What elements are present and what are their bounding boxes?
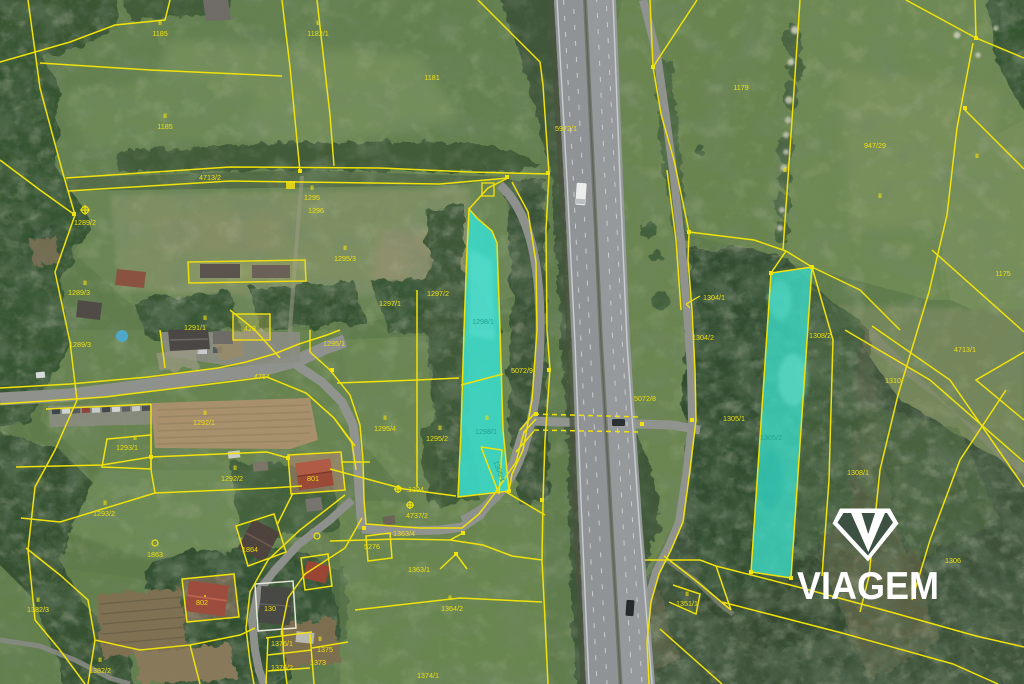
svg-text:5972/1: 5972/1 — [555, 124, 577, 133]
svg-text:1295/4: 1295/4 — [374, 424, 396, 433]
svg-text:II: II — [158, 20, 162, 27]
svg-text:5072/9: 5072/9 — [511, 366, 533, 375]
svg-text:1363/1: 1363/1 — [408, 565, 430, 574]
svg-text:1294: 1294 — [408, 485, 424, 494]
svg-text:1382/2: 1382/2 — [89, 666, 111, 675]
svg-text:1863: 1863 — [147, 550, 163, 559]
svg-text:1308/2: 1308/2 — [809, 331, 831, 340]
svg-text:1182/1: 1182/1 — [307, 29, 328, 38]
svg-text:1295/3: 1295/3 — [334, 254, 356, 263]
svg-text:1175: 1175 — [995, 269, 1010, 278]
svg-text:1382/3: 1382/3 — [27, 605, 49, 614]
svg-text:1304/2: 1304/2 — [692, 333, 714, 342]
svg-text:1179: 1179 — [733, 83, 748, 92]
svg-text:1289/2: 1289/2 — [74, 218, 96, 227]
svg-text:5072/8: 5072/8 — [634, 394, 656, 403]
svg-text:II: II — [163, 113, 167, 120]
svg-text:5276: 5276 — [364, 542, 380, 551]
svg-text:1181: 1181 — [424, 73, 439, 82]
svg-text:1364/2: 1364/2 — [441, 604, 463, 613]
svg-text:1293/2: 1293/2 — [93, 509, 115, 518]
svg-text:1363/4: 1363/4 — [393, 529, 415, 538]
svg-text:1376/2: 1376/2 — [271, 663, 293, 672]
svg-text:1376/1: 1376/1 — [271, 639, 293, 648]
svg-text:1310: 1310 — [885, 376, 901, 385]
svg-text:1308/1: 1308/1 — [847, 468, 869, 477]
svg-text:1374/1: 1374/1 — [417, 671, 439, 680]
svg-text:1291/1: 1291/1 — [184, 323, 206, 332]
svg-text:1296: 1296 — [308, 206, 324, 215]
svg-text:VIAGEM: VIAGEM — [797, 565, 939, 608]
svg-text:II: II — [83, 280, 87, 287]
svg-text:1292/2: 1292/2 — [221, 474, 243, 483]
svg-text:II: II — [316, 20, 320, 27]
svg-text:1351/1: 1351/1 — [676, 599, 698, 608]
svg-text:130: 130 — [264, 604, 276, 613]
svg-text:II: II — [203, 410, 207, 417]
svg-text:1185: 1185 — [157, 122, 172, 131]
svg-text:II: II — [438, 425, 442, 432]
svg-text:1305/2: 1305/2 — [760, 433, 782, 442]
svg-text:1292/1: 1292/1 — [193, 418, 215, 427]
svg-text:1297/1: 1297/1 — [379, 299, 401, 308]
svg-text:1304/1: 1304/1 — [703, 293, 725, 302]
svg-text:1298/1: 1298/1 — [475, 427, 497, 436]
svg-text:II: II — [318, 636, 322, 643]
svg-text:1289/3: 1289/3 — [68, 288, 90, 297]
svg-text:1373: 1373 — [310, 658, 326, 667]
svg-text:1305/1: 1305/1 — [723, 414, 745, 423]
svg-text:II: II — [448, 595, 452, 602]
svg-text:II: II — [36, 597, 40, 604]
svg-text:4737/2: 4737/2 — [406, 511, 428, 520]
svg-text:1295/2: 1295/2 — [426, 434, 448, 443]
svg-text:II: II — [98, 657, 102, 664]
svg-text:1298/1: 1298/1 — [472, 317, 494, 326]
svg-text:4764: 4764 — [254, 372, 270, 381]
svg-text:II: II — [878, 193, 882, 200]
svg-text:1297/2: 1297/2 — [427, 289, 449, 298]
svg-text:1295/1: 1295/1 — [323, 339, 345, 348]
svg-text:II: II — [133, 435, 137, 442]
svg-text:II: II — [685, 591, 689, 598]
svg-text:4713/1: 4713/1 — [954, 345, 976, 354]
svg-text:II: II — [203, 315, 207, 322]
svg-text:1306: 1306 — [945, 556, 961, 565]
svg-text:II: II — [233, 465, 237, 472]
svg-text:II: II — [783, 167, 787, 174]
svg-text:428: 428 — [244, 324, 256, 333]
svg-text:II: II — [310, 185, 314, 192]
svg-text:4713/2: 4713/2 — [199, 173, 221, 182]
svg-text:1185: 1185 — [152, 29, 167, 38]
svg-text:1289/3: 1289/3 — [69, 340, 91, 349]
svg-text:II: II — [975, 153, 979, 160]
svg-text:1293/1: 1293/1 — [116, 443, 138, 452]
svg-text:II: II — [280, 630, 284, 637]
svg-text:II: II — [383, 415, 387, 422]
svg-text:801: 801 — [307, 474, 319, 483]
svg-text:II: II — [103, 500, 107, 507]
svg-text:1375: 1375 — [317, 645, 333, 654]
svg-text:1864: 1864 — [242, 545, 258, 554]
svg-text:II: II — [485, 415, 489, 422]
svg-text:947/29: 947/29 — [864, 141, 886, 150]
svg-text:802: 802 — [196, 598, 208, 607]
svg-text:II: II — [343, 245, 347, 252]
svg-text:1295: 1295 — [304, 193, 320, 202]
